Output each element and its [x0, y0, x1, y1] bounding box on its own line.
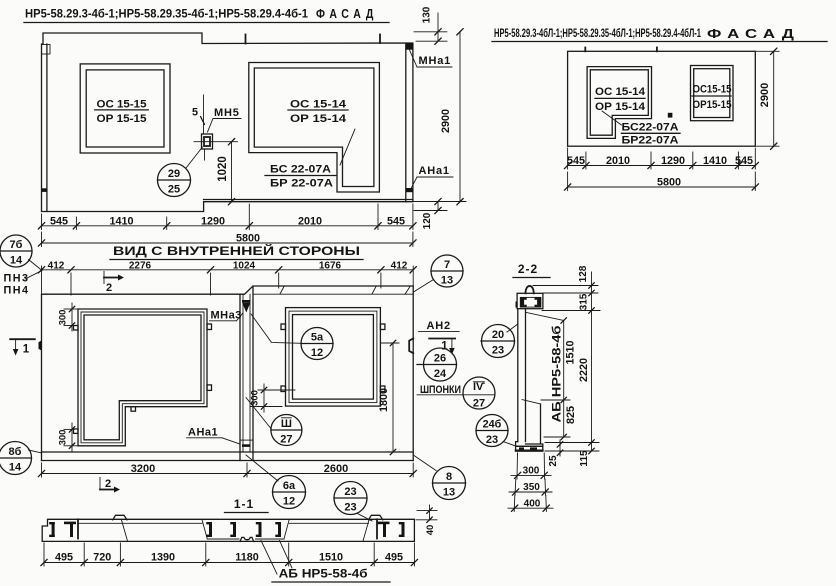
svg-text:5: 5	[192, 107, 198, 119]
svg-text:2220: 2220	[578, 358, 590, 382]
svg-text:23: 23	[344, 486, 356, 498]
svg-text:23: 23	[492, 345, 504, 357]
svg-text:14: 14	[9, 462, 22, 474]
svg-text:5800: 5800	[657, 177, 681, 189]
svg-text:25: 25	[548, 455, 559, 467]
svg-text:ОР 15-14: ОР 15-14	[290, 113, 347, 125]
svg-text:1410: 1410	[109, 215, 133, 227]
svg-text:130: 130	[422, 6, 433, 23]
svg-text:2276: 2276	[129, 260, 152, 271]
svg-text:2010: 2010	[606, 155, 630, 167]
svg-text:1020: 1020	[217, 156, 229, 182]
svg-text:8: 8	[446, 471, 452, 483]
svg-text:ОС 15-14: ОС 15-14	[290, 98, 347, 110]
svg-text:40: 40	[425, 525, 436, 536]
svg-text:23: 23	[344, 502, 356, 514]
svg-text:1510: 1510	[319, 551, 343, 563]
svg-text:400: 400	[524, 498, 541, 509]
svg-text:545: 545	[735, 155, 753, 167]
svg-text:27: 27	[280, 434, 292, 446]
svg-text:24б: 24б	[483, 419, 502, 431]
svg-text:1390: 1390	[151, 551, 175, 563]
svg-text:25: 25	[168, 184, 180, 196]
svg-text:545: 545	[387, 215, 405, 227]
svg-text:ОС 15-15: ОС 15-15	[97, 98, 147, 110]
svg-text:495: 495	[385, 551, 403, 563]
svg-text:3200: 3200	[131, 463, 155, 475]
svg-text:350: 350	[523, 482, 540, 493]
svg-text:2900: 2900	[440, 109, 452, 133]
svg-text:2010: 2010	[298, 215, 322, 227]
svg-text:300: 300	[523, 466, 540, 477]
svg-text:7: 7	[444, 259, 450, 271]
svg-text:МН5: МН5	[214, 107, 240, 119]
svg-text:АБ НР5-58-4б: АБ НР5-58-4б	[550, 326, 564, 423]
svg-text:545: 545	[50, 215, 68, 227]
svg-text:1180: 1180	[235, 551, 258, 563]
svg-text:128: 128	[578, 265, 589, 282]
svg-text:6а: 6а	[283, 480, 296, 492]
svg-text:1290: 1290	[661, 155, 685, 167]
svg-text:412: 412	[391, 260, 408, 271]
svg-text:1800: 1800	[378, 388, 390, 412]
svg-text:23: 23	[486, 434, 498, 446]
svg-text:27: 27	[473, 398, 485, 410]
svg-text:5а: 5а	[311, 332, 324, 344]
svg-text:НР5-58.29.3-4бЛ-1;НР5-58.29.35: НР5-58.29.3-4бЛ-1;НР5-58.29.35-4бЛ-1;НР5…	[494, 26, 701, 40]
svg-text:2: 2	[106, 282, 112, 294]
svg-text:1290: 1290	[201, 215, 225, 227]
svg-text:2-2: 2-2	[518, 262, 538, 276]
svg-text:1510: 1510	[565, 340, 577, 364]
svg-text:НР5-58.29.3-4б-1;НР5-58.29.35-: НР5-58.29.3-4б-1;НР5-58.29.35-4б-1;НР5-5…	[25, 7, 308, 21]
svg-text:300: 300	[58, 310, 69, 326]
svg-text:24: 24	[434, 368, 447, 380]
svg-text:545: 545	[567, 155, 585, 167]
svg-text:8б: 8б	[9, 446, 22, 458]
svg-text:2: 2	[105, 478, 111, 490]
svg-text:5800: 5800	[236, 233, 260, 245]
svg-text:БС22-07А: БС22-07А	[622, 122, 679, 134]
svg-text:300: 300	[58, 430, 69, 446]
svg-text:12: 12	[311, 347, 323, 359]
svg-text:БС 22-07А: БС 22-07А	[270, 164, 331, 176]
svg-text:120: 120	[422, 212, 433, 229]
svg-text:ОС 15-14: ОС 15-14	[595, 86, 646, 98]
svg-text:ШПОНКИ: ШПОНКИ	[420, 384, 461, 396]
svg-text:1410: 1410	[703, 155, 727, 167]
svg-text:1: 1	[441, 341, 448, 353]
svg-text:412: 412	[48, 260, 65, 271]
svg-text:26: 26	[434, 353, 446, 365]
svg-text:13: 13	[441, 275, 453, 287]
svg-text:Ш: Ш	[281, 418, 292, 430]
svg-text:ПН4: ПН4	[4, 285, 30, 297]
svg-text:АНа1: АНа1	[188, 427, 218, 439]
svg-text:ІѴ: ІѴ	[473, 381, 485, 393]
svg-text:2600: 2600	[324, 463, 348, 475]
svg-text:ОС15-15: ОС15-15	[693, 84, 732, 96]
svg-text:ОР 15-15: ОР 15-15	[97, 113, 147, 125]
svg-text:АБ НР5-58-4б: АБ НР5-58-4б	[279, 569, 368, 581]
svg-text:495: 495	[55, 551, 73, 563]
svg-text:14: 14	[10, 255, 23, 267]
svg-text:315: 315	[579, 293, 590, 310]
svg-text:МНа1: МНа1	[419, 55, 452, 67]
svg-text:720: 720	[93, 551, 111, 563]
svg-text:20: 20	[492, 329, 504, 341]
svg-text:АН2: АН2	[427, 320, 451, 332]
svg-text:13: 13	[443, 487, 455, 499]
svg-text:825: 825	[565, 406, 577, 424]
svg-text:1676: 1676	[319, 260, 342, 271]
svg-text:ФАСАД: ФАСАД	[316, 7, 378, 21]
svg-text:1: 1	[23, 344, 30, 356]
svg-text:115: 115	[579, 450, 590, 467]
svg-text:ФАСАД: ФАСАД	[707, 27, 800, 41]
svg-text:ОР15-15: ОР15-15	[693, 99, 732, 111]
svg-text:АНа1: АНа1	[419, 165, 450, 177]
svg-text:БР22-07А: БР22-07А	[622, 135, 679, 147]
svg-text:1-1: 1-1	[234, 497, 254, 511]
svg-text:29: 29	[168, 168, 180, 180]
svg-text:7б: 7б	[10, 239, 23, 251]
svg-text:2900: 2900	[759, 83, 771, 107]
svg-text:12: 12	[283, 496, 295, 508]
svg-text:1024: 1024	[233, 260, 256, 271]
svg-text:ВИД С ВНУТРЕННЕЙ СТОРОНЫ: ВИД С ВНУТРЕННЕЙ СТОРОНЫ	[113, 243, 360, 258]
svg-text:БР 22-07А: БР 22-07А	[270, 178, 333, 190]
